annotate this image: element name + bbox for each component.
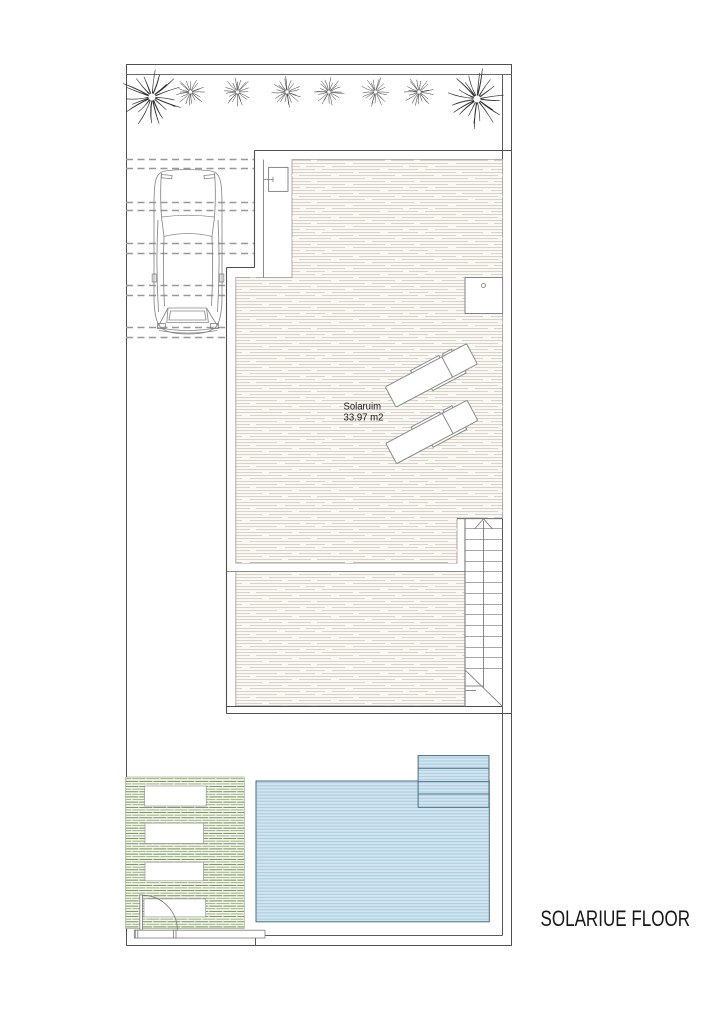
svg-text:Solaruim: Solaruim <box>344 402 382 413</box>
svg-text:33.97 m2: 33.97 m2 <box>344 412 384 423</box>
svg-text:SOLARIUE FLOOR: SOLARIUE FLOOR <box>541 906 691 931</box>
